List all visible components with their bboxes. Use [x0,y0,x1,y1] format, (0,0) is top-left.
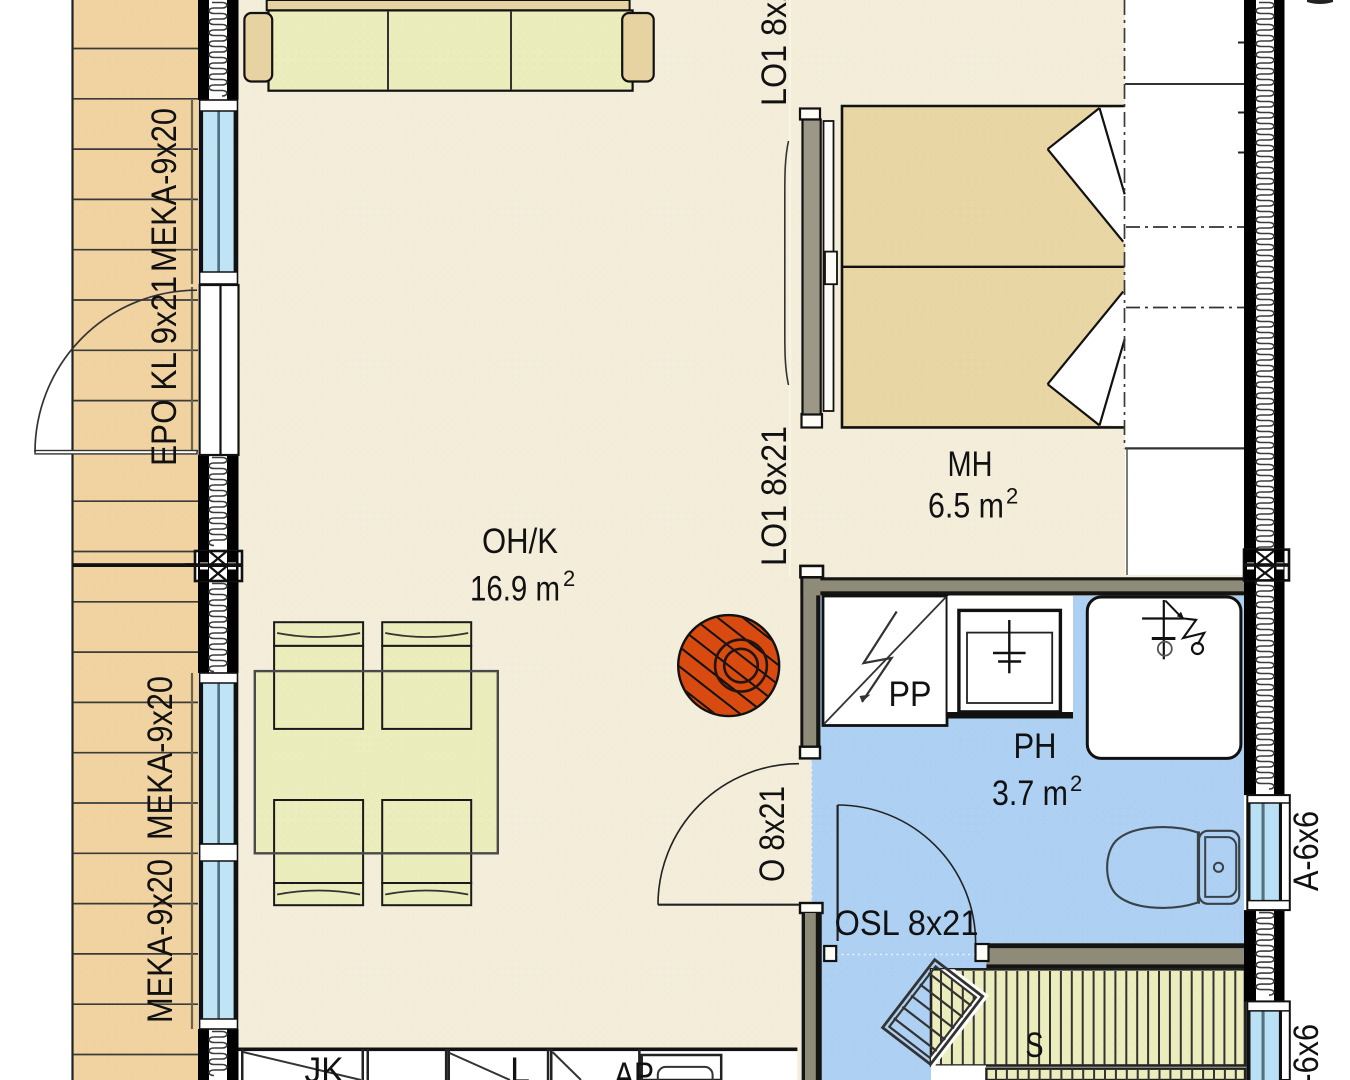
svg-text:A-6x6: A-6x6 [1287,811,1326,891]
svg-text:2: 2 [1070,771,1082,796]
svg-text:OH/K: OH/K [482,522,558,561]
svg-text:O 8x21: O 8x21 [753,786,792,882]
svg-text:S: S [1026,1026,1044,1065]
svg-text:L: L [510,1051,530,1080]
svg-text:MH: MH [948,445,993,484]
svg-text:PH: PH [1014,727,1057,766]
svg-text:2: 2 [1006,484,1018,509]
svg-text:OSL 8x21: OSL 8x21 [835,904,979,943]
svg-text:16.9 m: 16.9 m [470,570,560,609]
svg-text:6.5 m: 6.5 m [928,487,1004,526]
svg-text:MEKA-9x20: MEKA-9x20 [141,676,180,840]
svg-text:A-6x6: A-6x6 [1287,1024,1326,1080]
svg-text:LO1 8x21: LO1 8x21 [755,426,794,566]
svg-text:3.7 m: 3.7 m [992,774,1068,813]
svg-text:MEKA-9x20: MEKA-9x20 [141,859,180,1023]
svg-text:AP: AP [614,1056,654,1080]
svg-text:EPO KL 9x21: EPO KL 9x21 [145,276,184,466]
svg-text:PP: PP [889,675,932,714]
svg-text:MEKA-9x20: MEKA-9x20 [145,108,184,272]
svg-text:2: 2 [563,566,575,591]
svg-text:JK: JK [305,1051,344,1080]
svg-text:LO1 8x21: LO1 8x21 [755,0,794,106]
